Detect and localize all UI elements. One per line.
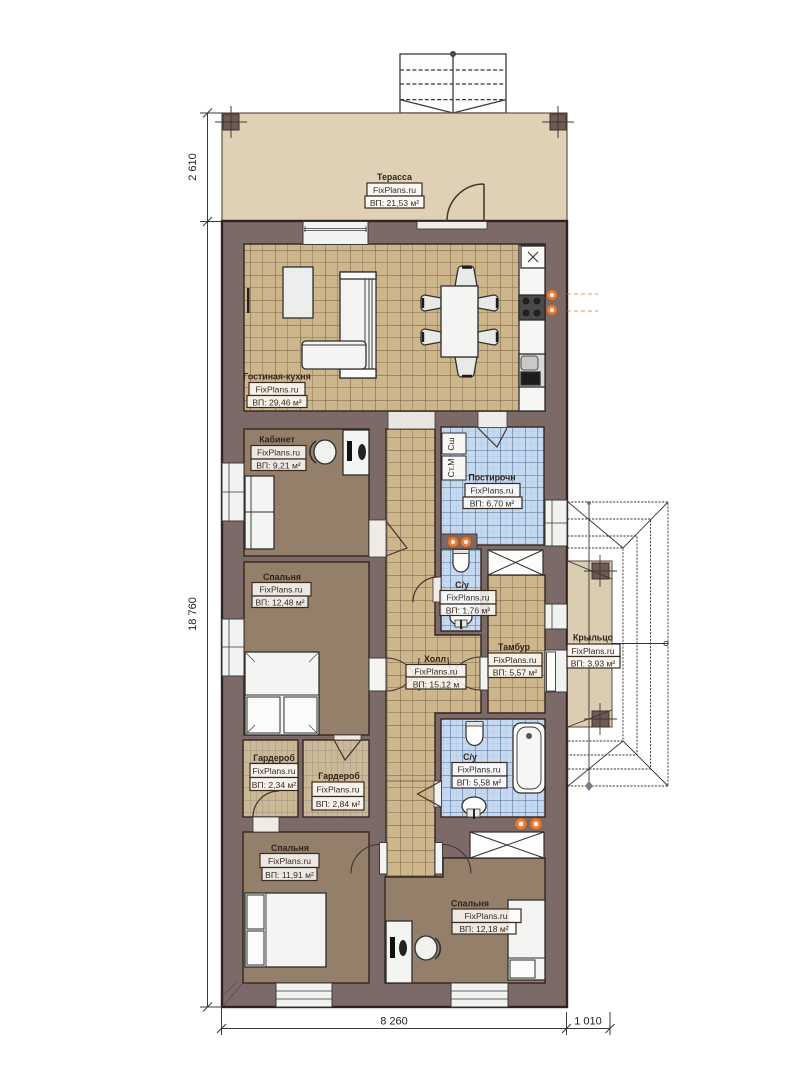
svg-text:ВП: 5,57 м²: ВП: 5,57 м² (493, 668, 538, 678)
svg-text:1 010: 1 010 (574, 1016, 602, 1028)
svg-text:ВП: 21,53 м²: ВП: 21,53 м² (370, 198, 419, 208)
svg-text:Крыльцо: Крыльцо (573, 633, 614, 643)
svg-text:FixPlans.ru: FixPlans.ru (415, 667, 458, 677)
svg-text:Гостиная-кухня: Гостиная-кухня (243, 372, 310, 382)
svg-text:ВП: 15,12 м: ВП: 15,12 м (413, 680, 460, 690)
svg-text:ВП: 5,58 м²: ВП: 5,58 м² (457, 778, 502, 788)
svg-text:FixPlans.ru: FixPlans.ru (494, 655, 537, 665)
svg-text:Спальня: Спальня (271, 843, 309, 853)
svg-text:18 760: 18 760 (187, 597, 199, 631)
svg-text:ВП: 29,46 м²: ВП: 29,46 м² (252, 398, 301, 408)
svg-text:FixPlans.ru: FixPlans.ru (471, 486, 514, 496)
svg-text:С/у: С/у (463, 752, 477, 762)
svg-text:FixPlans.ru: FixPlans.ru (257, 448, 300, 458)
svg-text:ВП: 6,70 м²: ВП: 6,70 м² (470, 499, 515, 509)
svg-text:ВП: 12,48 м²: ВП: 12,48 м² (255, 598, 304, 608)
svg-text:ВП: 1,76 м²: ВП: 1,76 м² (446, 606, 491, 616)
svg-text:ВП: 3,93 м²: ВП: 3,93 м² (571, 659, 616, 669)
svg-text:Холл: Холл (424, 654, 446, 664)
svg-text:FixPlans.ru: FixPlans.ru (465, 911, 508, 921)
svg-text:FixPlans.ru: FixPlans.ru (572, 646, 615, 656)
svg-text:С/у: С/у (455, 580, 469, 590)
svg-text:FixPlans.ru: FixPlans.ru (268, 856, 311, 866)
svg-text:FixPlans.ru: FixPlans.ru (373, 185, 416, 195)
svg-text:FixPlans.ru: FixPlans.ru (256, 385, 299, 395)
svg-text:Сш: Сш (446, 437, 456, 450)
svg-text:Ст.М: Ст.М (446, 459, 456, 478)
svg-text:Гардероб: Гардероб (318, 771, 360, 781)
svg-text:FixPlans.ru: FixPlans.ru (447, 593, 490, 603)
svg-text:Постирочн: Постирочн (468, 473, 515, 483)
svg-text:FixPlans.ru: FixPlans.ru (260, 585, 303, 595)
svg-text:FixPlans.ru: FixPlans.ru (458, 765, 501, 775)
svg-text:ВП: 2,34 м²: ВП: 2,34 м² (252, 780, 297, 790)
svg-text:Кабинет: Кабинет (259, 435, 295, 445)
svg-text:Тамбур: Тамбур (498, 642, 531, 652)
svg-text:FixPlans.ru: FixPlans.ru (253, 766, 296, 776)
svg-text:8 260: 8 260 (380, 1016, 408, 1028)
svg-text:ВП: 12,18 м²: ВП: 12,18 м² (459, 924, 508, 934)
svg-text:ВП: 2,84 м²: ВП: 2,84 м² (316, 799, 361, 809)
svg-text:Спальня: Спальня (451, 899, 489, 909)
svg-text:FixPlans.ru: FixPlans.ru (317, 785, 360, 795)
svg-text:ВП: 11,91 м²: ВП: 11,91 м² (265, 870, 314, 880)
svg-text:Терасса: Терасса (377, 172, 412, 182)
svg-text:Спальня: Спальня (263, 572, 301, 582)
svg-text:2 610: 2 610 (187, 153, 199, 181)
svg-text:ВП: 9,21 м²: ВП: 9,21 м² (256, 461, 301, 471)
svg-text:Гардероб: Гардероб (253, 753, 295, 763)
